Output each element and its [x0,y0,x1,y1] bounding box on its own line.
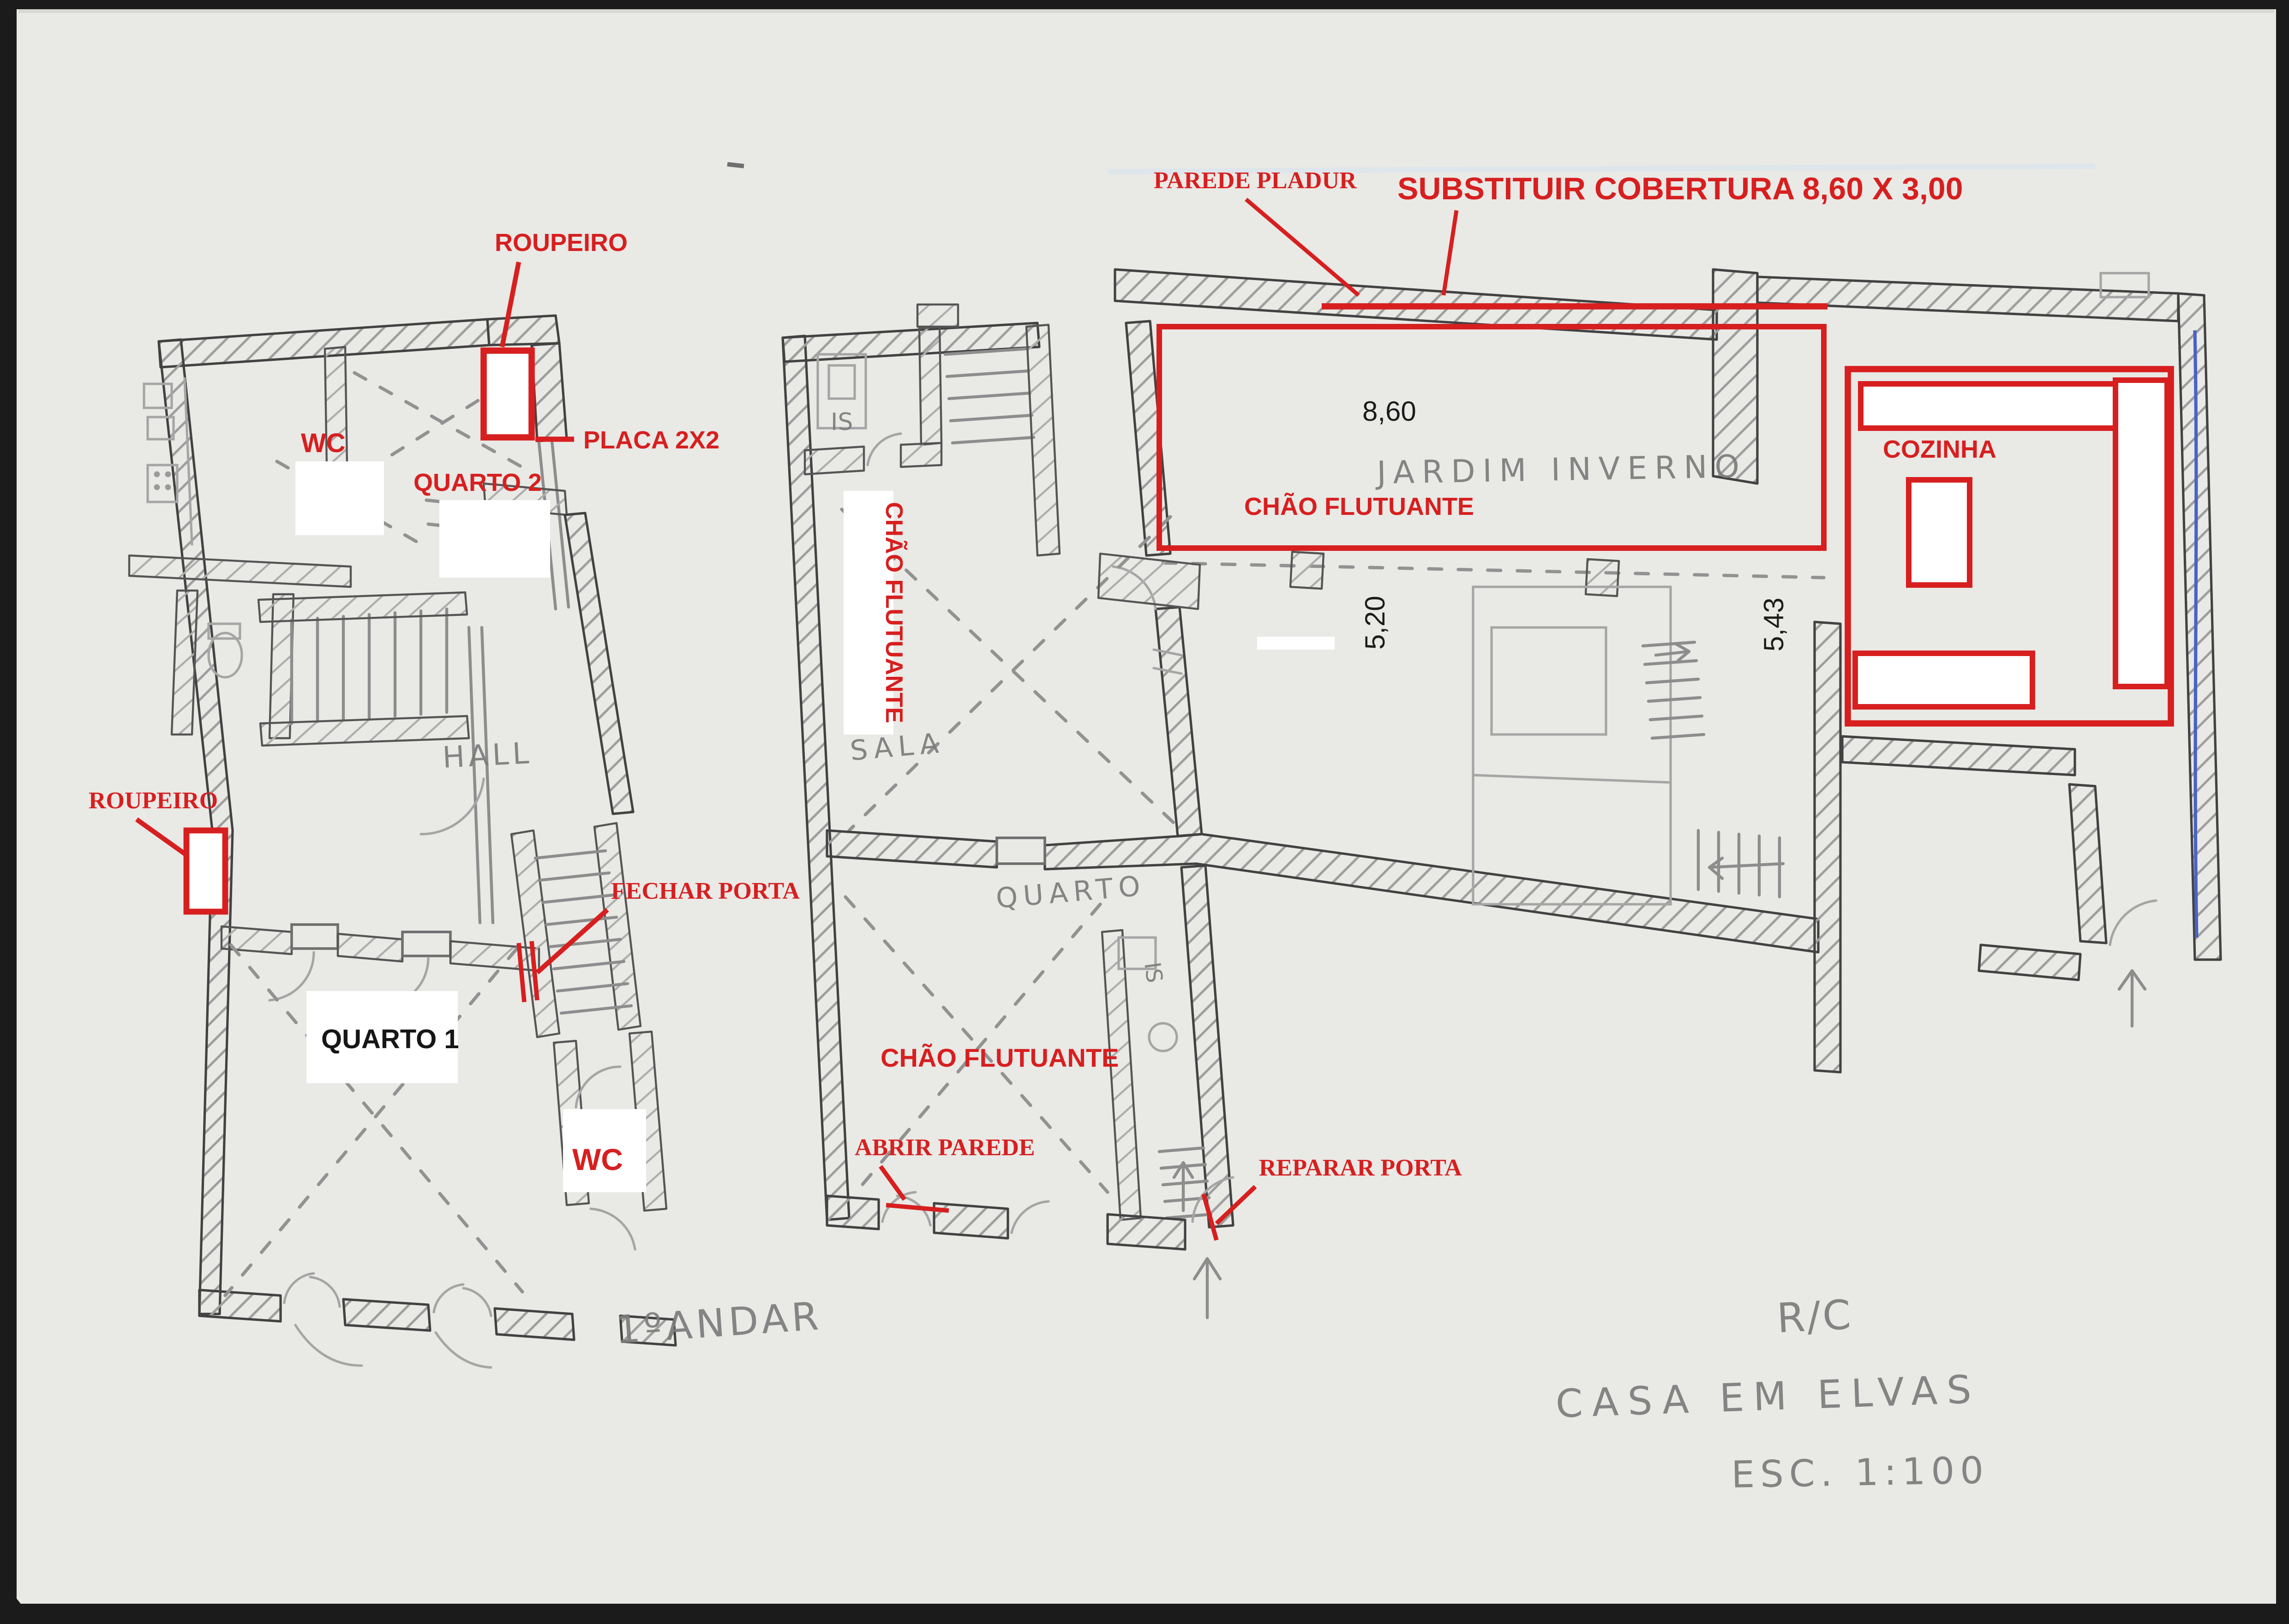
scan-border-bottom [0,1604,2289,1624]
wall-top-right [487,316,559,345]
label-wc-top: WC [301,428,346,458]
label-hall: HALL [442,736,533,775]
burner-dot [154,472,160,478]
label-quarto2: QUARTO 2 [413,469,542,496]
wall-is-south [901,443,941,467]
wall-right-upper [532,343,567,441]
door-lintel [292,925,338,949]
pillar [1290,552,1324,589]
wall-bottom [495,1308,574,1340]
label-wc-bottom: WC [572,1142,623,1176]
label-roupeiro-left: ROUPEIRO [89,788,218,814]
label-placa: PLACA 2X2 [583,426,719,454]
cozinha-counter-top [1861,384,2115,428]
dim-8-60: 8,60 [1362,396,1416,427]
whiteout-patch [1257,637,1335,650]
cozinha-island [1909,480,1970,585]
whiteout-patch [295,461,384,535]
cozinha-counter-bottom [1855,653,2032,707]
wall-vertical-back [1815,622,1840,1072]
scan-border-right [2276,0,2289,1624]
scanned-floor-plan-page: ROUPEIRO PLACA 2X2 WC QUARTO 2 ROUPEIRO … [0,0,2289,1624]
pencil-dash-mark [727,164,744,166]
label-abrir-parede: ABRIR PAREDE [855,1134,1035,1161]
caption-ground-floor: R/C [1776,1291,1854,1342]
label-jardim-inverno: JARDIM INVERNO [1375,448,1747,491]
label-is-top: IS [831,408,853,436]
cozinha-counter-right [2115,380,2167,687]
whiteout-patch [439,500,550,578]
label-quarto1: QUARTO 1 [321,1024,459,1054]
label-roupeiro-top: ROUPEIRO [495,229,628,257]
label-cozinha: COZINHA [1883,436,1996,463]
burner-dot [154,484,160,490]
burner-dot [165,484,171,490]
blue-pen-line [2195,330,2197,937]
floor-plan-drawing: ROUPEIRO PLACA 2X2 WC QUARTO 2 ROUPEIRO … [0,0,2289,1624]
chimney-block [917,304,958,327]
dim-5-20: 5,20 [1360,596,1390,650]
door-lintel [402,932,450,956]
caption-scale: ESC. 1:100 [1731,1449,1989,1496]
roupeiro-box [484,351,532,437]
pillar [1586,559,1619,596]
label-chao-vertical: CHÃO FLUTUANTE [881,502,908,723]
wall-hall-q1 [338,934,402,961]
scan-border-left [0,0,17,1624]
label-substituir-cobertura: SUBSTITUIR COBERTURA 8,60 X 3,00 [1397,171,1963,206]
wall-bottom [1108,1214,1185,1249]
label-reparar-porta: REPARAR PORTA [1259,1155,1462,1181]
label-fechar-porta: FECHAR PORTA [611,878,800,904]
wall-is-room [919,327,941,445]
burner-dot [165,472,171,478]
wall-hall-q1 [222,926,292,954]
wall-toilet-left [172,591,198,734]
scan-border-top [0,0,2289,9]
label-parede-pladur: PAREDE PLADUR [1154,167,1357,194]
wall-bottom [199,1290,281,1321]
dim-5-43: 5,43 [1758,597,1789,651]
wall-is-south [805,447,864,474]
door-lintel [997,838,1045,864]
label-chao-jardim: CHÃO FLUTUANTE [1244,493,1474,520]
roupeiro-box [186,830,225,912]
label-is-small: IS [1139,961,1168,985]
label-chao-mid: CHÃO FLUTUANTE [881,1043,1119,1072]
paper-edge [18,9,2274,13]
wall-bottom [827,1196,879,1229]
wall-bottom [343,1299,430,1331]
